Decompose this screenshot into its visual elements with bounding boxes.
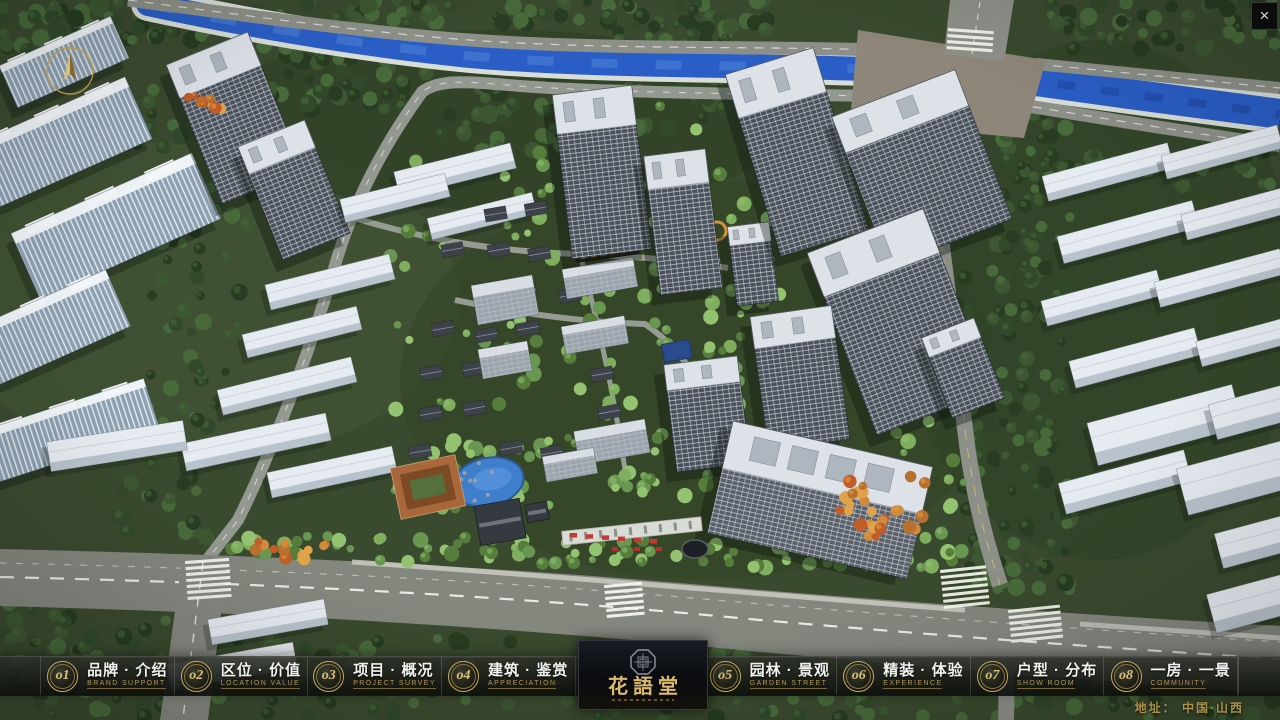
number-badge-icon: o5	[710, 661, 741, 692]
number-badge-icon: o8	[1111, 661, 1142, 692]
close-button[interactable]: ×	[1251, 2, 1278, 30]
nav-label-en: LOCATION VALUE	[221, 680, 300, 689]
logo-subtitle-rule	[612, 699, 674, 701]
navbar-spacer	[0, 657, 41, 695]
project-logo-title: 花語堂	[603, 677, 683, 697]
presentation-window: × o1 品牌 · 介绍BRAND SUPPORT o2 区位 · 价值LOCA…	[0, 0, 1280, 720]
nav-label-cn: 精装 · 体验	[883, 663, 963, 679]
nav-label-en: COMMUNITY	[1151, 680, 1207, 689]
nav-label-en: GARDEN STREET	[750, 680, 828, 689]
project-address: 地址： 中国·山西	[1135, 699, 1244, 716]
nav-label-cn: 建筑 · 鉴赏	[488, 663, 568, 679]
nav-label-cn: 一房 · 一景	[1151, 663, 1231, 679]
nav-item-architecture[interactable]: o4 建筑 · 鉴赏APPRECIATION	[442, 657, 576, 695]
nav-item-location[interactable]: o2 区位 · 价值LOCATION VALUE	[175, 657, 309, 695]
nav-label-cn: 项目 · 概况	[353, 663, 433, 679]
number-badge-icon: o2	[181, 661, 212, 692]
number-badge-icon: o7	[977, 661, 1008, 692]
nav-label-cn: 区位 · 价值	[221, 663, 301, 679]
navbar-spacer	[1238, 657, 1280, 695]
nav-label-cn: 园林 · 景观	[750, 663, 830, 679]
nav-label-en: EXPERIENCE	[883, 680, 942, 689]
number-badge-icon: o4	[448, 661, 479, 692]
nav-item-garden[interactable]: o5 园林 · 景观GARDEN STREET	[704, 657, 838, 695]
site-plan-viewport[interactable]	[0, 0, 1280, 720]
logo-panel[interactable]: 花語堂	[578, 640, 708, 710]
nav-label-cn: 户型 · 分布	[1017, 663, 1097, 679]
number-badge-icon: o3	[313, 661, 344, 692]
nav-item-brand[interactable]: o1 品牌 · 介绍BRAND SUPPORT	[41, 657, 175, 695]
nav-label-en: PROJECT SURVEY	[353, 680, 436, 689]
number-badge-icon: o1	[47, 661, 78, 692]
nav-item-views[interactable]: o8 一房 · 一景COMMUNITY	[1104, 657, 1238, 695]
nav-label-en: BRAND SUPPORT	[87, 680, 165, 689]
nav-item-project[interactable]: o3 项目 · 概况PROJECT SURVEY	[308, 657, 442, 695]
nav-label-en: SHOW ROOM	[1017, 680, 1075, 689]
nav-item-floorplan[interactable]: o7 户型 · 分布SHOW ROOM	[971, 657, 1105, 695]
nav-label-cn: 品牌 · 介绍	[87, 663, 167, 679]
nav-item-interior[interactable]: o6 精装 · 体验EXPERIENCE	[837, 657, 971, 695]
number-badge-icon: o6	[843, 661, 874, 692]
seal-icon	[630, 649, 656, 675]
nav-label-en: APPRECIATION	[488, 680, 556, 689]
